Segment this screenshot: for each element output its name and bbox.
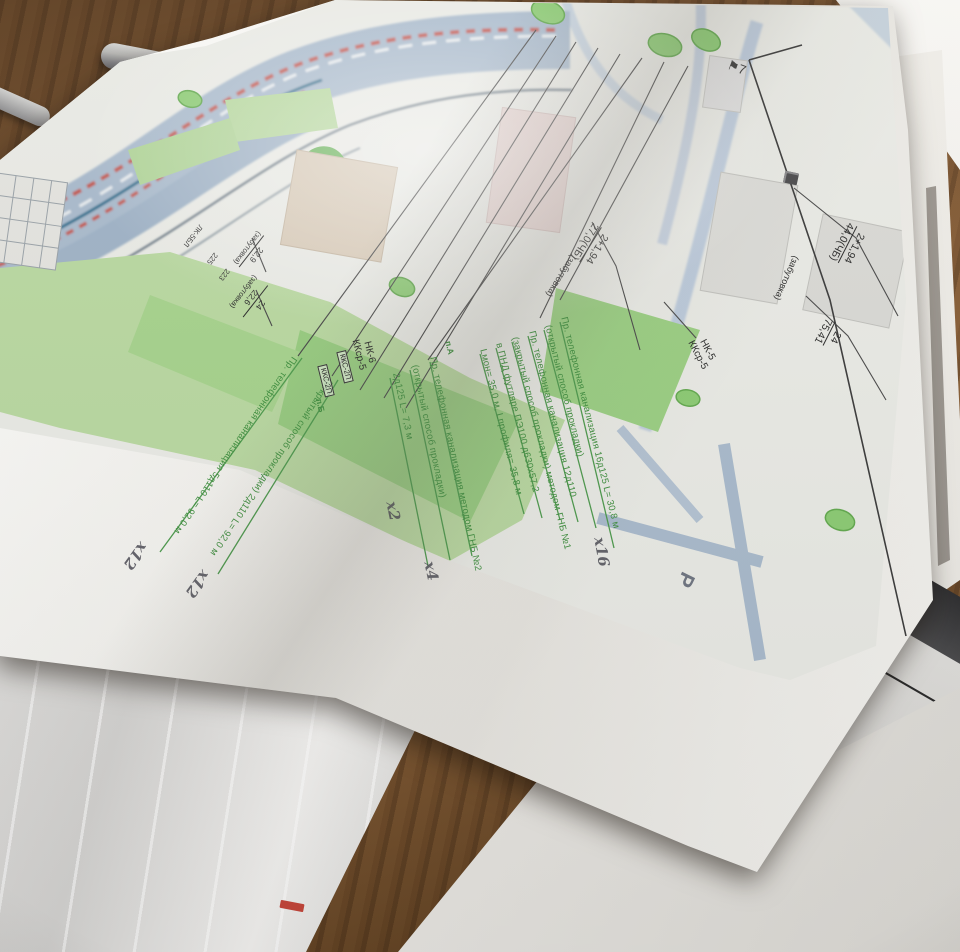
point-marker: п.Б	[314, 398, 326, 413]
main-sheet-wrapper: Пр. телефонная канализация 16д125 L= 30,…	[0, 0, 960, 952]
point-marker: п.А	[443, 340, 455, 355]
map-graphic	[0, 0, 960, 952]
site-plan-sheet: Пр. телефонная канализация 16д125 L= 30,…	[0, 0, 960, 952]
handwritten-mark: х2	[383, 500, 402, 522]
handwritten-mark: х16	[590, 536, 611, 568]
photo-of-printed-site-plan: nfo@ о при которы	[0, 0, 960, 952]
utility-symbol	[783, 171, 799, 186]
handwritten-mark: х4	[421, 560, 440, 582]
